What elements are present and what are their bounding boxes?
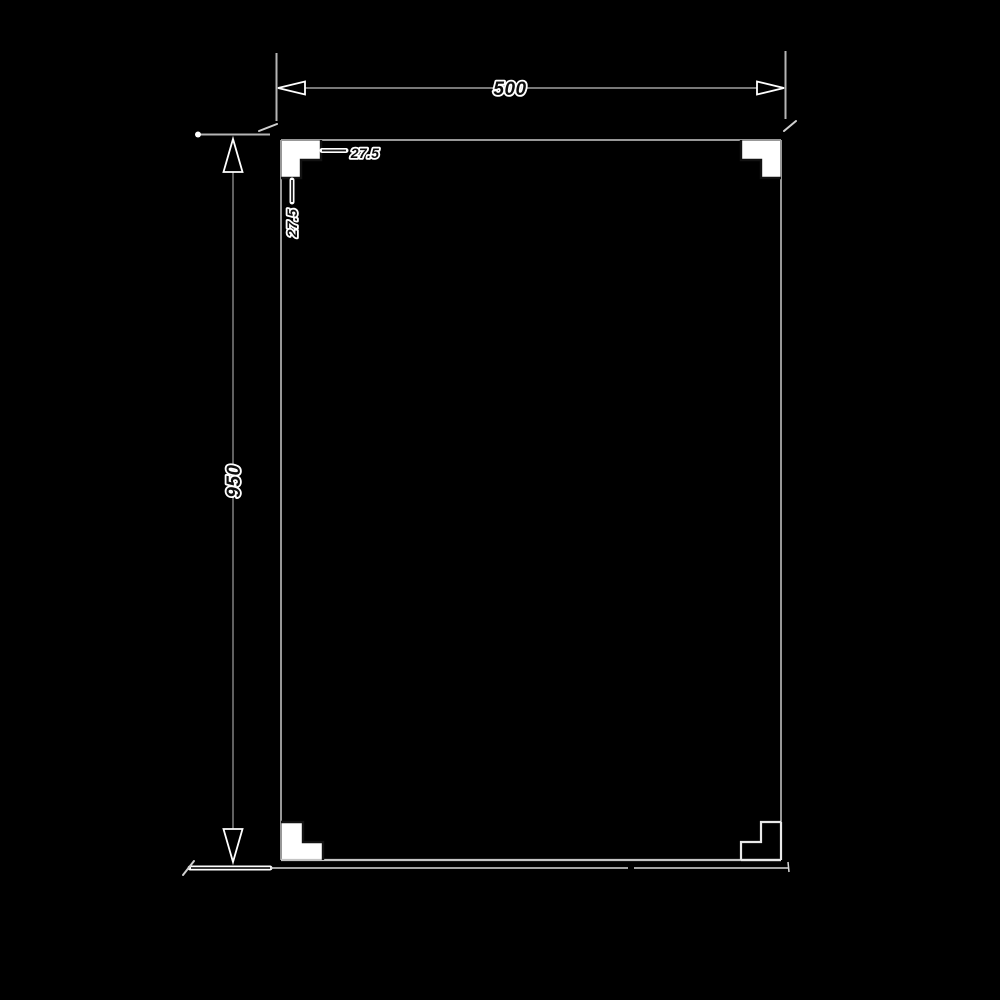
bottom-right-notch-steps <box>741 822 781 860</box>
height-extension-end-dot <box>195 132 201 138</box>
width-dimension-label: 500 <box>493 79 526 100</box>
width-extension-tick-left <box>259 124 277 131</box>
height-arrow-up-icon <box>224 139 243 172</box>
notch-vertical-label: 27.5 <box>284 209 300 238</box>
width-extension-tick-right <box>784 121 796 131</box>
width-arrow-right-icon <box>757 82 784 95</box>
height-arrow-down-icon <box>224 829 243 862</box>
technical-drawing-canvas: 500 950 27.5 27.5 <box>0 0 1000 1000</box>
dimension-drawing: 500 950 27.5 27.5 <box>0 0 1000 1000</box>
height-dimension-label: 950 <box>224 464 245 497</box>
width-arrow-left-icon <box>278 82 305 95</box>
notch-horizontal-label: 27.5 <box>350 145 379 161</box>
bottom-lip-end-tick <box>788 862 789 872</box>
